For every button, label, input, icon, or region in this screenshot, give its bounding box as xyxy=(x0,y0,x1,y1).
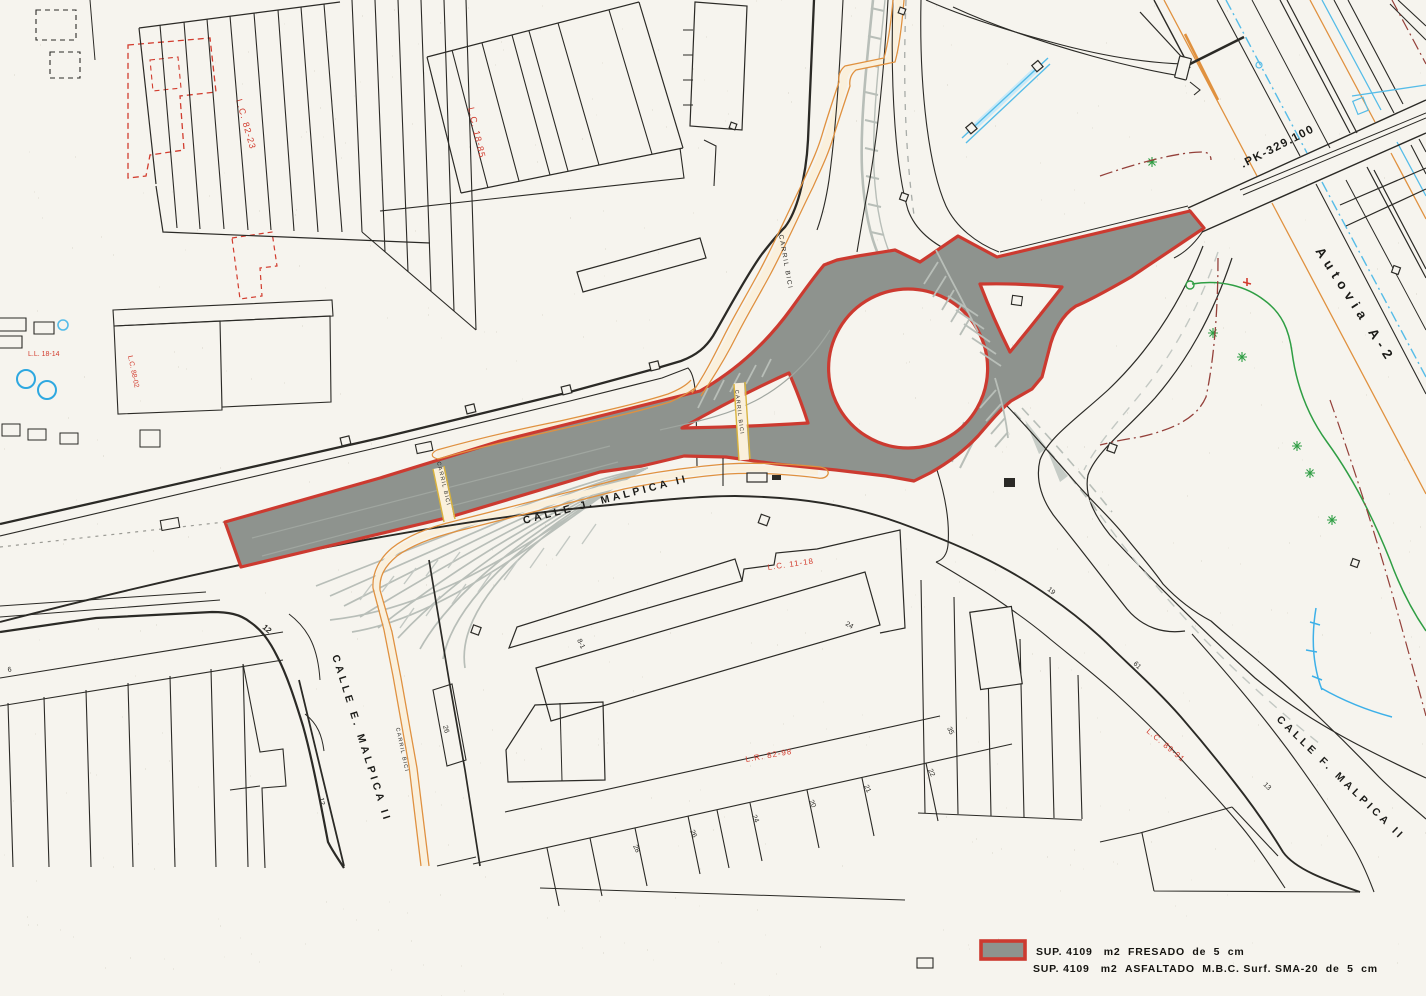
svg-text:L.L. 18-14: L.L. 18-14 xyxy=(28,351,60,358)
svg-text:SUP. 4109 m2 FRESADO de 5: SUP. 4109 m2 FRESADO de 5 cm xyxy=(1036,946,1245,958)
svg-text:SUP. 4109 m2 ASFALTADO M.B: SUP. 4109 m2 ASFALTADO M.B.C. Surf. SMA-… xyxy=(1033,963,1378,975)
